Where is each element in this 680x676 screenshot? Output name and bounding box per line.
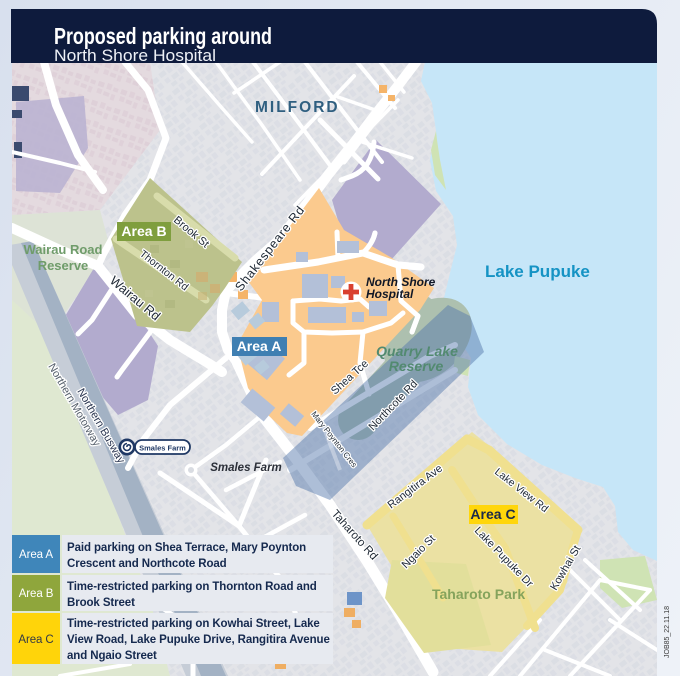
svg-text:Lake Pupuke: Lake Pupuke [485, 262, 590, 281]
svg-text:Wairau Road: Wairau Road [24, 242, 103, 257]
svg-text:Area B: Area B [19, 588, 54, 600]
svg-text:Area B: Area B [121, 223, 166, 239]
svg-text:Area A: Area A [19, 549, 53, 561]
svg-text:View Road, Lake Pupuke Drive,: View Road, Lake Pupuke Drive, Rangitira … [67, 634, 330, 646]
svg-text:Time-restricted parking on Tho: Time-restricted parking on Thornton Road… [67, 581, 317, 593]
svg-text:Reserve: Reserve [389, 358, 444, 374]
svg-text:Area C: Area C [470, 506, 515, 522]
svg-text:Area A: Area A [237, 338, 282, 354]
svg-text:Smales Farm: Smales Farm [210, 462, 282, 474]
svg-text:and Ngaio Street: and Ngaio Street [67, 650, 157, 662]
svg-text:Brook Street: Brook Street [67, 597, 135, 609]
svg-text:Paid parking on Shea Terrace,: Paid parking on Shea Terrace, Mary Poynt… [67, 542, 306, 554]
svg-text:Quarry Lake: Quarry Lake [376, 343, 458, 359]
svg-text:Smales Farm: Smales Farm [139, 444, 186, 453]
svg-text:MILFORD: MILFORD [255, 99, 340, 116]
svg-text:North Shore Hospital: North Shore Hospital [54, 46, 216, 65]
svg-text:Taharoto Park: Taharoto Park [432, 586, 525, 602]
svg-text:Area C: Area C [18, 634, 53, 646]
svg-text:Crescent and Northcote Road: Crescent and Northcote Road [67, 558, 227, 570]
svg-text:JOB85_22.11.18: JOB85_22.11.18 [664, 606, 671, 658]
svg-text:Hospital: Hospital [366, 287, 414, 301]
svg-text:Reserve: Reserve [38, 258, 89, 273]
svg-text:Time-restricted parking on Kow: Time-restricted parking on Kowhai Street… [67, 618, 320, 630]
